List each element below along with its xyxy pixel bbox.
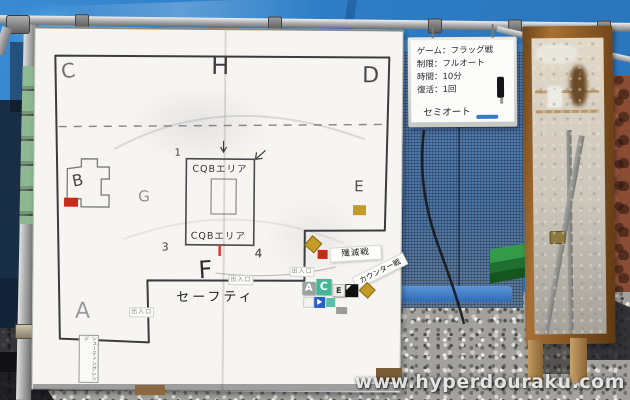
mirror-dust-overlay [531, 38, 606, 335]
map-dashed-line [59, 122, 385, 130]
arrow-icon [317, 299, 322, 305]
zone-label-e: E [354, 179, 364, 194]
cqb-inner-rect [211, 179, 236, 214]
corner-number-3: 3 [162, 241, 169, 254]
gold-marker-e [353, 205, 366, 215]
teal-square-magnet [326, 298, 335, 307]
blue-marker-in-tray [476, 115, 498, 119]
marker-pen [497, 77, 504, 98]
photo-airsoft-field-boards: C H D B G E A F CQBエリア CQBエリア 1 3 4 セーフテ… [0, 0, 630, 400]
tarp-fold-roll [400, 286, 512, 302]
magnet-letter-e: E [332, 284, 345, 297]
corner-arrow-mark [255, 150, 265, 159]
entrance-label-center: 出入口 [228, 275, 253, 285]
board-ground-shadow [33, 384, 400, 391]
rule-line-limit: 制限：フルオート [417, 56, 485, 70]
magnet-letter-a: A [302, 282, 315, 295]
cqb-area-label-bottom: CQBエリア [191, 228, 246, 242]
gray-square-magnet [336, 307, 347, 314]
tag-annihilation-mode: 殲滅戦 [329, 245, 382, 263]
black-square-magnet [345, 284, 358, 297]
watermark: www.hyperdouraku.com [355, 371, 625, 393]
down-arrow-mark [221, 141, 227, 152]
safety-zone-label: セーフティ [176, 291, 255, 305]
zone-label-h: H [211, 54, 229, 78]
zone-label-c: C [60, 60, 76, 82]
magnet-letter-c: C [316, 279, 331, 295]
rule-line-game: ゲーム：フラッグ戦 [417, 43, 494, 57]
zone-label-a: A [75, 301, 90, 323]
shooting-range-label: シューティングレンジ [78, 335, 98, 383]
corner-number-1: 1 [174, 148, 180, 159]
mirror-glass [531, 38, 606, 335]
corner-number-4: 4 [255, 246, 263, 260]
hanger-hook-icon [432, 24, 434, 38]
wood-block [135, 385, 165, 395]
standing-mirror [524, 24, 618, 380]
white-corner-mark [346, 285, 351, 290]
hanger-hook-icon [492, 24, 494, 38]
zone-label-f: F [198, 257, 213, 282]
cqb-area-label-top: CQBエリア [192, 161, 247, 175]
rule-note-semiauto: セミオート [423, 104, 471, 119]
entrance-label-right: 出入口 [289, 267, 314, 277]
red-square-magnet [318, 250, 328, 259]
mirror-leg-shadow [542, 344, 572, 374]
field-map-whiteboard: C H D B G E A F CQBエリア CQBエリア 1 3 4 セーフテ… [31, 26, 403, 392]
entrance-label-left: 出入口 [129, 307, 154, 317]
mirror-wood-frame [522, 26, 615, 345]
rule-line-time: 時間：10分 [417, 70, 462, 83]
marker-pen-tip [500, 98, 503, 104]
game-rules-whiteboard: ゲーム：フラッグ戦 制限：フルオート 時間：10分 復活：1回 セミオート [408, 37, 518, 128]
red-marker-b [64, 198, 78, 207]
pole-clamp [428, 18, 442, 33]
rule-line-respawn: 復活：1回 [417, 83, 457, 96]
blue-arrow-magnet [314, 297, 325, 308]
zone-label-g: G [138, 189, 150, 204]
white-square-magnet [303, 297, 314, 308]
zone-label-d: D [362, 65, 379, 87]
